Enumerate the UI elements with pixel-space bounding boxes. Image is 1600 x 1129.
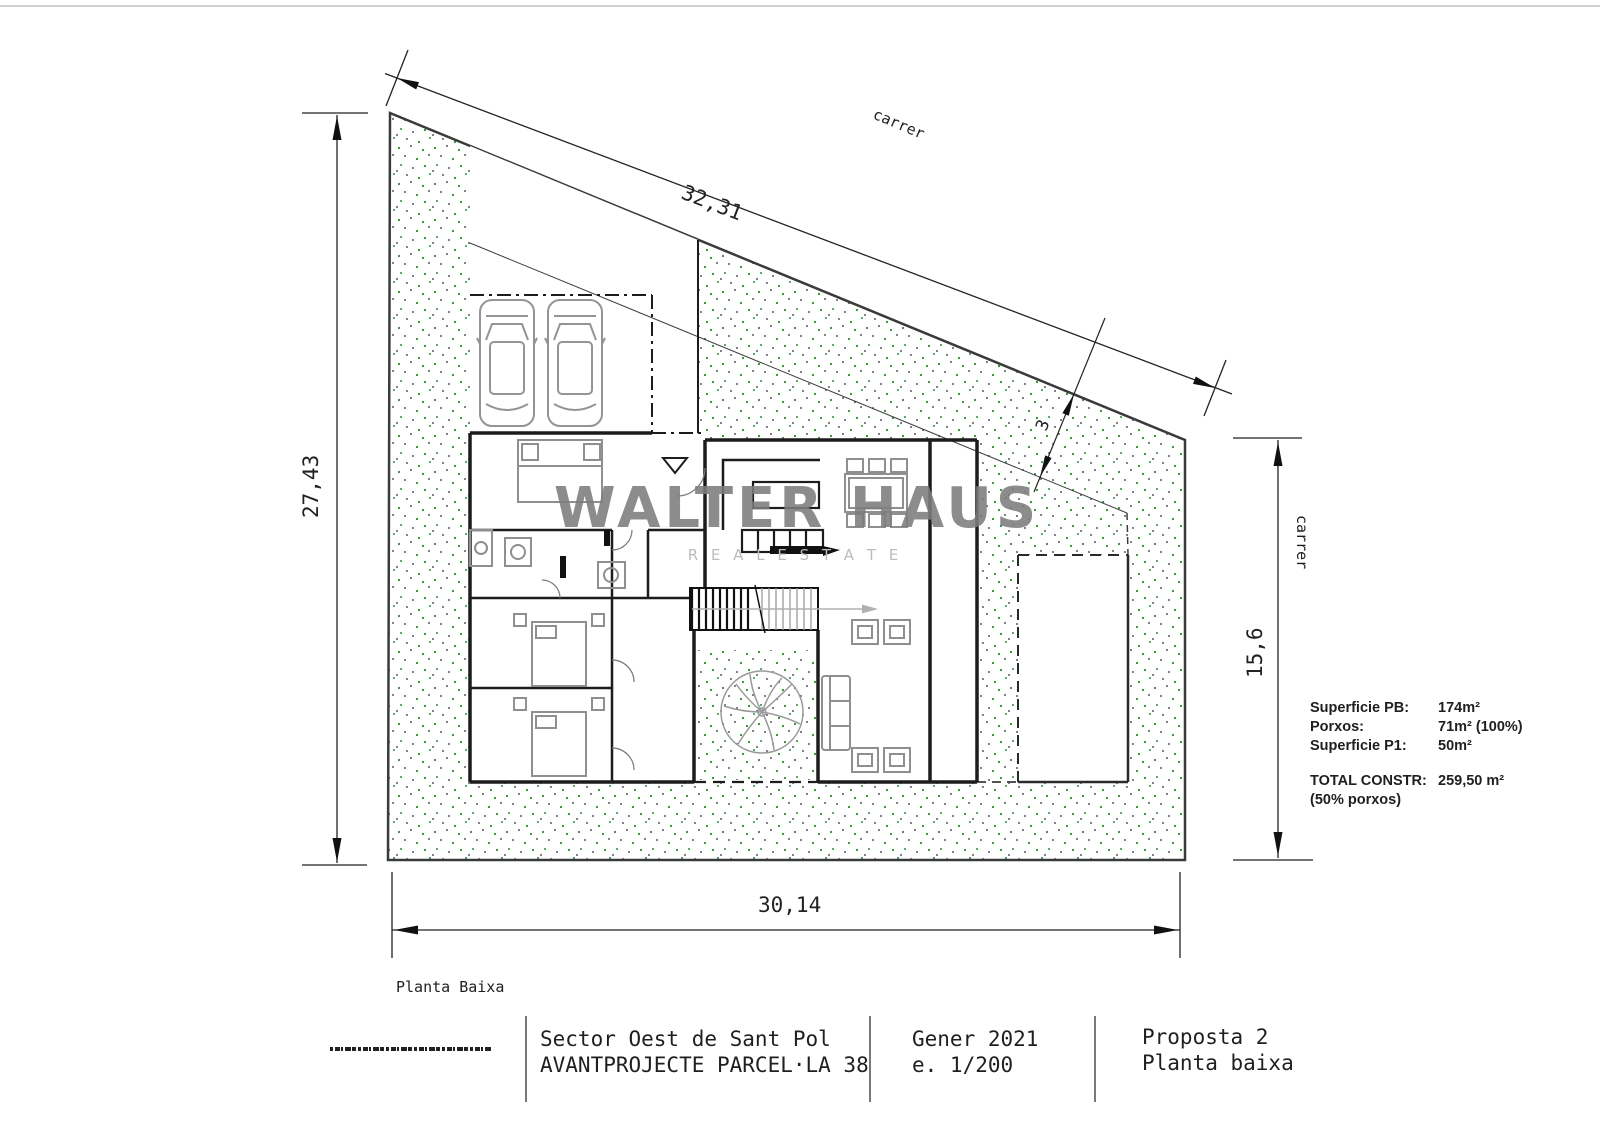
area-row-label: Porxos: bbox=[1310, 719, 1364, 735]
watermark-brand: WALTER HAUS bbox=[554, 476, 1040, 541]
area-row-value: 71m² (100%) bbox=[1438, 719, 1523, 735]
area-total-label: TOTAL CONSTR: bbox=[1310, 773, 1427, 789]
dimension-left-vertical: 27,43 bbox=[299, 113, 368, 865]
project-title-line1: Sector Oest de Sant Pol bbox=[540, 1027, 831, 1051]
door-jamb-2 bbox=[560, 556, 566, 578]
watermark-tagline: R E A L E S T A T E bbox=[688, 546, 903, 564]
pool-area bbox=[1018, 555, 1128, 782]
street-label-top: carrer bbox=[870, 105, 927, 143]
dimension-bottom-horizontal: 30,14 bbox=[392, 872, 1180, 958]
area-row-label: Superficie PB: bbox=[1310, 700, 1409, 716]
title-sheet: Planta baixa bbox=[1142, 1051, 1294, 1075]
title-scale: e. 1/200 bbox=[912, 1053, 1013, 1077]
floor-label: Planta Baixa bbox=[396, 978, 504, 996]
dimension-right-vertical: 15,6 bbox=[1233, 438, 1313, 860]
area-table: Superficie PB: 174m² Porxos: 71m² (100%)… bbox=[1310, 700, 1523, 808]
site-plan-svg: 32,31 27,43 30,14 15,6 3 carrer carrer P… bbox=[0, 0, 1600, 1129]
area-row-value: 174m² bbox=[1438, 700, 1480, 716]
title-proposal: Proposta 2 bbox=[1142, 1025, 1268, 1049]
dim-left-label: 27,43 bbox=[299, 455, 323, 518]
dim-top-label: 32,31 bbox=[678, 180, 746, 225]
area-total-value: 259,50 m² bbox=[1438, 773, 1504, 789]
area-row-value: 50m² bbox=[1438, 738, 1472, 754]
patio-garden bbox=[697, 650, 816, 780]
title-block: Sector Oest de Sant Pol AVANTPROJECTE PA… bbox=[330, 1016, 1294, 1102]
floor-plan-document: 32,31 27,43 30,14 15,6 3 carrer carrer P… bbox=[0, 0, 1600, 1129]
area-total-note: (50% porxos) bbox=[1310, 792, 1401, 808]
project-title-line2: AVANTPROJECTE PARCEL·LA 38 bbox=[540, 1053, 869, 1077]
dim-bottom-label: 30,14 bbox=[758, 893, 821, 917]
title-date: Gener 2021 bbox=[912, 1027, 1038, 1051]
area-row-label: Superficie P1: bbox=[1310, 738, 1407, 754]
street-label-right: carrer bbox=[1293, 515, 1311, 569]
dim-right-label: 15,6 bbox=[1243, 627, 1267, 678]
